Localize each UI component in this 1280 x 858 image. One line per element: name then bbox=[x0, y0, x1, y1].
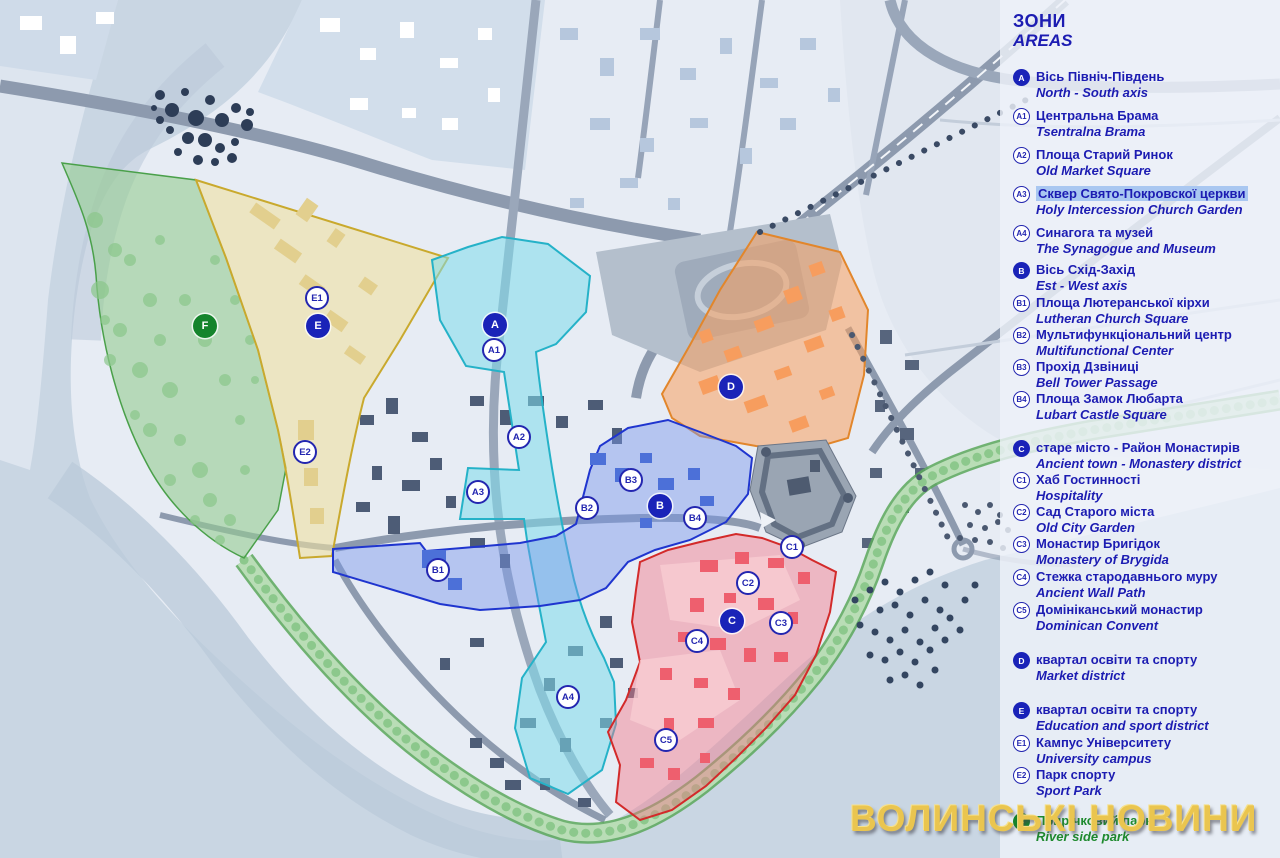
map-marker-C2[interactable]: C2 bbox=[736, 571, 760, 595]
legend-label-uk: Парк спорту bbox=[1036, 767, 1115, 783]
legend-label-en: University campus bbox=[1036, 751, 1171, 767]
legend-item-a[interactable]: A Вісь Північ-Південь North - South axis bbox=[1013, 69, 1275, 101]
map-marker-C5[interactable]: C5 bbox=[654, 728, 678, 752]
legend-label-uk: Площа Старий Ринок bbox=[1036, 147, 1173, 163]
legend-label-uk: Вісь Північ-Південь bbox=[1036, 69, 1164, 85]
legend-badge-a1: A1 bbox=[1013, 108, 1030, 125]
legend-label-en: Market district bbox=[1036, 668, 1197, 684]
legend-item-c2[interactable]: C2 Сад Старого міста Old City Garden bbox=[1013, 504, 1275, 536]
legend-label-en: Tsentralna Brama bbox=[1036, 124, 1158, 140]
legend-label-en: Ancient Wall Path bbox=[1036, 585, 1217, 601]
legend-item-a1[interactable]: A1 Центральна Брама Tsentralna Brama bbox=[1013, 108, 1275, 140]
legend-label-en: Old City Garden bbox=[1036, 520, 1154, 536]
legend-badge-d: D bbox=[1013, 652, 1030, 669]
map-marker-C[interactable]: C bbox=[720, 609, 744, 633]
legend-label-en: Dominican Convent bbox=[1036, 618, 1203, 634]
legend-label-en: Holy Intercession Church Garden bbox=[1036, 202, 1248, 218]
map-marker-A2[interactable]: A2 bbox=[507, 425, 531, 449]
map-marker-F[interactable]: F bbox=[193, 314, 217, 338]
legend-badge-b1: B1 bbox=[1013, 295, 1030, 312]
map-marker-E[interactable]: E bbox=[306, 314, 330, 338]
legend-label-uk: Вісь Схід-Захід bbox=[1036, 262, 1135, 278]
legend-label-uk: Кампус Університету bbox=[1036, 735, 1171, 751]
legend-badge-c2: C2 bbox=[1013, 504, 1030, 521]
legend-label-uk: квартал освіти та спорту bbox=[1036, 702, 1209, 718]
legend-label-uk: Монастир Бригідок bbox=[1036, 536, 1169, 552]
map-marker-B3[interactable]: B3 bbox=[619, 468, 643, 492]
legend-label-en: Education and sport district bbox=[1036, 718, 1209, 734]
map-marker-B4[interactable]: B4 bbox=[683, 506, 707, 530]
legend-label-en: North - South axis bbox=[1036, 85, 1164, 101]
map-marker-C4[interactable]: C4 bbox=[685, 629, 709, 653]
map-marker-D[interactable]: D bbox=[719, 375, 743, 399]
legend-badge-c4: C4 bbox=[1013, 569, 1030, 586]
legend-item-b3[interactable]: B3 Прохід Дзвіниці Bell Tower Passage bbox=[1013, 359, 1275, 391]
legend-item-c1[interactable]: C1 Хаб Гостинності Hospitality bbox=[1013, 472, 1275, 504]
legend-label-en: Est - West axis bbox=[1036, 278, 1135, 294]
map-marker-B[interactable]: B bbox=[648, 494, 672, 518]
legend-label-uk-highlighted: Сквер Свято-Покровскої церкви bbox=[1036, 186, 1248, 201]
legend-item-b4[interactable]: B4 Площа Замок Любарта Lubart Castle Squ… bbox=[1013, 391, 1275, 423]
legend-label-uk: Домініканський монастир bbox=[1036, 602, 1203, 618]
legend-item-e[interactable]: E квартал освіти та спорту Education and… bbox=[1013, 702, 1275, 734]
legend-badge-a3: A3 bbox=[1013, 186, 1030, 203]
legend-label-uk: Мультифункціональний центр bbox=[1036, 327, 1232, 343]
legend-label-uk: Хаб Гостинності bbox=[1036, 472, 1140, 488]
legend-badge-a: A bbox=[1013, 69, 1030, 86]
map-marker-B2[interactable]: B2 bbox=[575, 496, 599, 520]
legend-label-uk: Прохід Дзвіниці bbox=[1036, 359, 1158, 375]
legend-badge-c3: C3 bbox=[1013, 536, 1030, 553]
map-marker-E1[interactable]: E1 bbox=[305, 286, 329, 310]
legend-title-en: AREAS bbox=[1013, 31, 1073, 50]
watermark-volynski-novyny: ВОЛИНСЬКІ НОВИНИ bbox=[850, 798, 1258, 840]
legend-label-en: Sport Park bbox=[1036, 783, 1115, 799]
legend-label-en: Bell Tower Passage bbox=[1036, 375, 1158, 391]
legend-label-en: The Synagogue and Museum bbox=[1036, 241, 1216, 257]
legend-item-b[interactable]: B Вісь Схід-Захід Est - West axis bbox=[1013, 262, 1275, 294]
map-marker-A3[interactable]: A3 bbox=[466, 480, 490, 504]
legend-item-a2[interactable]: A2 Площа Старий Ринок Old Market Square bbox=[1013, 147, 1275, 179]
legend-badge-e1: E1 bbox=[1013, 735, 1030, 752]
legend-badge-b: B bbox=[1013, 262, 1030, 279]
legend-badge-a4: A4 bbox=[1013, 225, 1030, 242]
legend-title-uk: ЗОНИ bbox=[1013, 12, 1073, 31]
legend-badge-b4: B4 bbox=[1013, 391, 1030, 408]
map-marker-E2[interactable]: E2 bbox=[293, 440, 317, 464]
legend-label-uk: старе місто - Район Монастирів bbox=[1036, 440, 1241, 456]
legend-label-uk: Стежка стародавнього муру bbox=[1036, 569, 1217, 585]
legend-badge-b2: B2 bbox=[1013, 327, 1030, 344]
legend-label-en: Old Market Square bbox=[1036, 163, 1173, 179]
legend-panel: ЗОНИ AREAS A Вісь Північ-Південь North -… bbox=[1000, 0, 1280, 858]
map-marker-C1[interactable]: C1 bbox=[780, 535, 804, 559]
map-marker-C3[interactable]: C3 bbox=[769, 611, 793, 635]
legend-title: ЗОНИ AREAS bbox=[1013, 12, 1073, 50]
map-marker-A4[interactable]: A4 bbox=[556, 685, 580, 709]
legend-item-a4[interactable]: A4 Синагога та музей The Synagogue and M… bbox=[1013, 225, 1275, 257]
legend-item-b1[interactable]: B1 Площа Лютеранської кірхи Lutheran Chu… bbox=[1013, 295, 1275, 327]
legend-badge-a2: A2 bbox=[1013, 147, 1030, 164]
legend-badge-e2: E2 bbox=[1013, 767, 1030, 784]
map-marker-A1[interactable]: A1 bbox=[482, 338, 506, 362]
legend-item-c3[interactable]: C3 Монастир Бригідок Monastery of Brygid… bbox=[1013, 536, 1275, 568]
legend-label-en: Monastery of Brygida bbox=[1036, 552, 1169, 568]
legend-label-uk: Центральна Брама bbox=[1036, 108, 1158, 124]
legend-label-uk: квартал освіти та спорту bbox=[1036, 652, 1197, 668]
legend-badge-c5: C5 bbox=[1013, 602, 1030, 619]
map-marker-B1[interactable]: B1 bbox=[426, 558, 450, 582]
legend-label-en: Lutheran Church Square bbox=[1036, 311, 1210, 327]
map-marker-A[interactable]: A bbox=[483, 313, 507, 337]
legend-label-en: Hospitality bbox=[1036, 488, 1140, 504]
legend-item-e1[interactable]: E1 Кампус Університету University campus bbox=[1013, 735, 1275, 767]
legend-badge-e: E bbox=[1013, 702, 1030, 719]
legend-label-en: Multifunctional Center bbox=[1036, 343, 1232, 359]
legend-label-uk: Площа Замок Любарта bbox=[1036, 391, 1183, 407]
legend-badge-b3: B3 bbox=[1013, 359, 1030, 376]
legend-item-e2[interactable]: E2 Парк спорту Sport Park bbox=[1013, 767, 1275, 799]
legend-label-uk: Синагога та музей bbox=[1036, 225, 1216, 241]
legend-item-b2[interactable]: B2 Мультифункціональний центр Multifunct… bbox=[1013, 327, 1275, 359]
legend-badge-c: C bbox=[1013, 440, 1030, 457]
legend-item-c[interactable]: C старе місто - Район Монастирів Ancient… bbox=[1013, 440, 1275, 472]
legend-label-en: Ancient town - Monastery district bbox=[1036, 456, 1241, 472]
legend-label-uk: Площа Лютеранської кірхи bbox=[1036, 295, 1210, 311]
legend-item-c5[interactable]: C5 Домініканський монастир Dominican Con… bbox=[1013, 602, 1275, 634]
legend-item-c4[interactable]: C4 Стежка стародавнього муру Ancient Wal… bbox=[1013, 569, 1275, 601]
city-zoning-map-page: A A1 A2 A3 A4 B B1 B2 B3 B4 C C1 C2 C3 C… bbox=[0, 0, 1280, 858]
legend-item-a3[interactable]: A3 Сквер Свято-Покровскої церкви Holy In… bbox=[1013, 186, 1275, 218]
legend-label-en: Lubart Castle Square bbox=[1036, 407, 1183, 423]
legend-badge-c1: C1 bbox=[1013, 472, 1030, 489]
legend-item-d[interactable]: D квартал освіти та спорту Market distri… bbox=[1013, 652, 1275, 684]
legend-label-uk: Сад Старого міста bbox=[1036, 504, 1154, 520]
